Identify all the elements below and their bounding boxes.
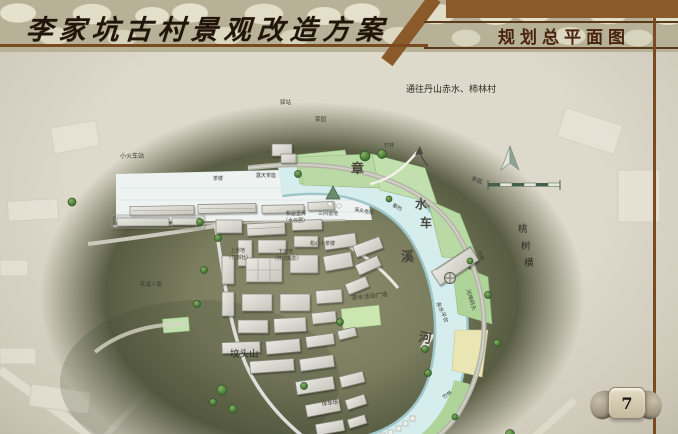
page-subtitle: 规划总平面图 (498, 23, 630, 48)
page-title: 李家坑古村景观改造方案 (25, 8, 391, 47)
slide: 通往丹山赤水、柿林村小火车站驿站菜园竹林茶园章水车溪河桃树横竹林河埠码头亲水平台… (0, 0, 678, 434)
map-label: （水云居） (283, 217, 308, 224)
map-label: 上道地 (230, 247, 245, 254)
template-vertical-rule (653, 18, 656, 434)
map-label: （竹刻社） (226, 254, 251, 261)
map-label: 驿站 (280, 98, 292, 106)
map-label: 露天茶座 (256, 172, 276, 179)
page-number-emblem: 7 (590, 384, 662, 424)
map-label: 三间道地 (318, 210, 338, 217)
map-label: 竹林 (384, 142, 394, 149)
map-label: 茶楼 (213, 175, 223, 182)
map-label: 小火车站 (120, 152, 144, 160)
header-brown-band (446, 0, 678, 18)
map-label: 河 (417, 329, 433, 347)
map-label: 章 (351, 161, 364, 177)
map-label: 新屋里弄 (286, 210, 306, 217)
map-label: 坟头山 (230, 348, 259, 360)
map-label: 下道地 (278, 248, 293, 255)
slide-header: 李家坑古村景观改造方案 规划总平面图 (0, 0, 678, 52)
map-label: 溪 (401, 249, 415, 265)
waterwheel (445, 273, 456, 284)
title-underline (0, 44, 428, 47)
map-label: 通往丹山赤水、柿林村 (406, 83, 496, 95)
map-label: 松心小茶楼 (310, 240, 335, 247)
map-label: 菜园 (315, 115, 327, 123)
page-number: 7 (608, 387, 646, 419)
master-plan-map: 通往丹山赤水、柿林村小火车站驿站菜园竹林茶园章水车溪河桃树横竹林河埠码头亲水平台… (0, 52, 678, 434)
map-label: （怀旧戏影） (272, 255, 302, 262)
map-label: 花溪人家 (140, 280, 163, 288)
